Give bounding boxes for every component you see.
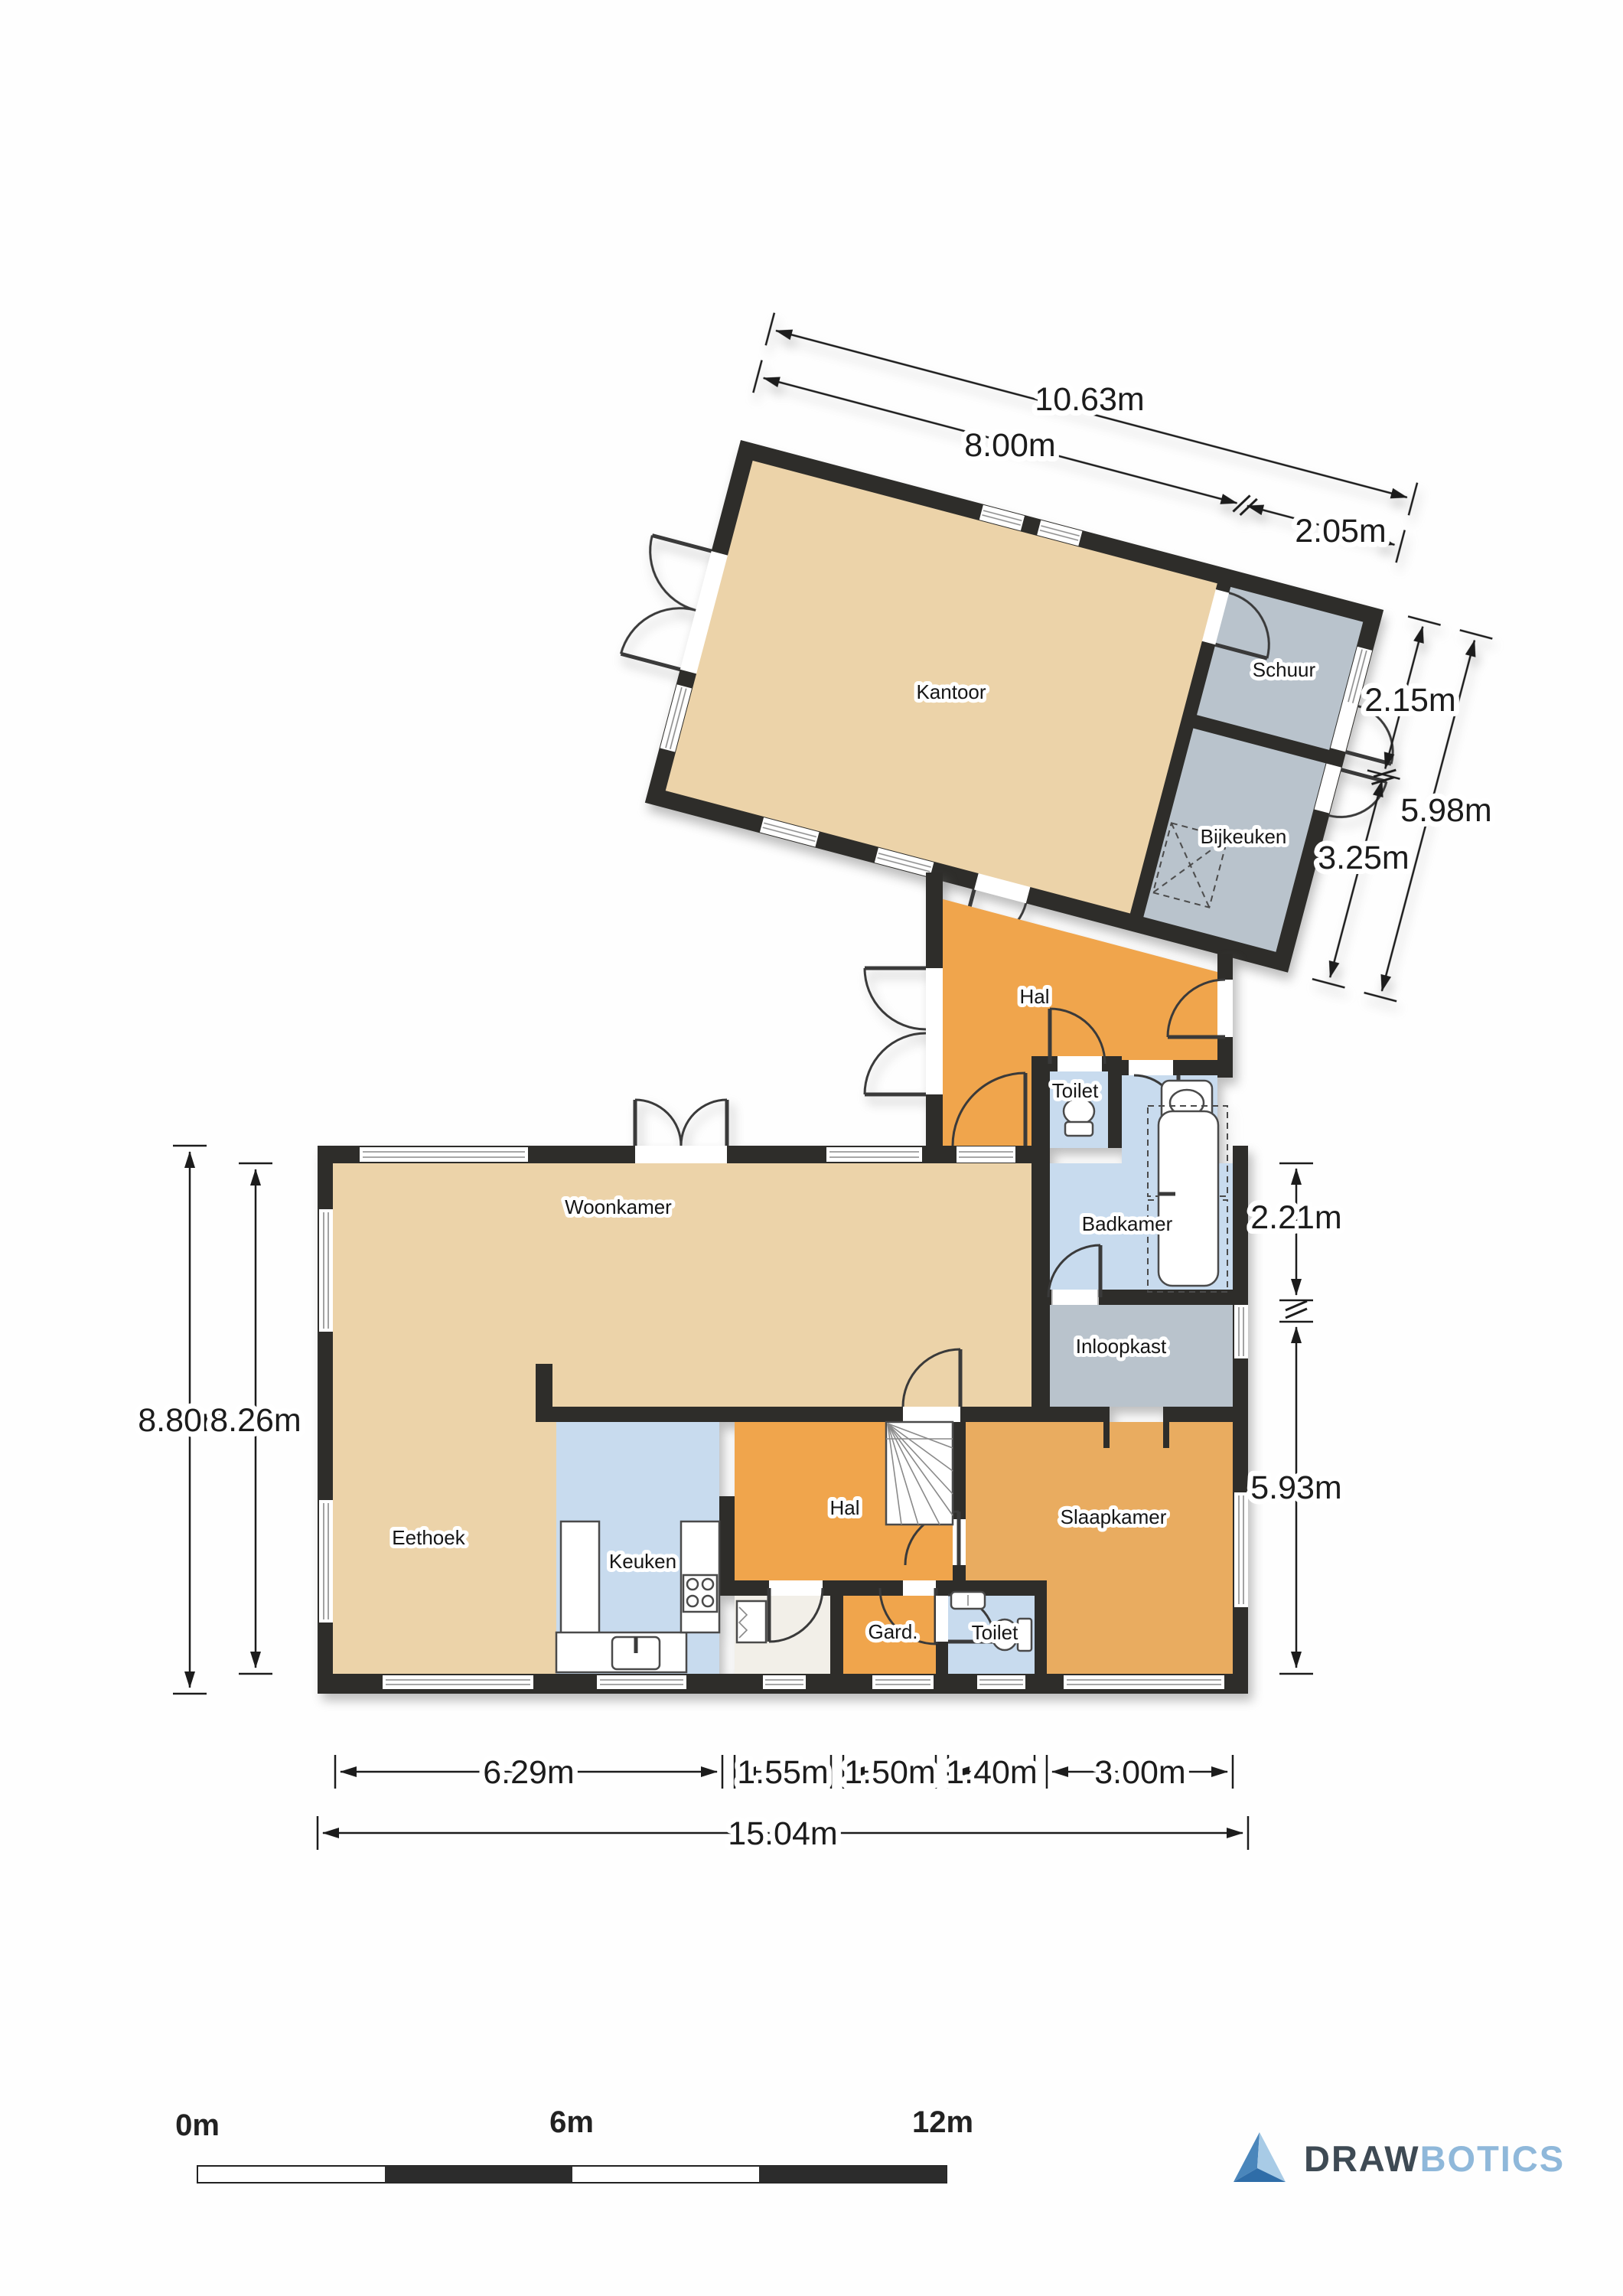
room-label-woonkamer: Woonkamer (565, 1195, 672, 1218)
dim-2-05m: 2.05m (1295, 513, 1387, 550)
stairs (886, 1422, 953, 1525)
dim-15-04m: 15.04m (728, 1815, 837, 1852)
room-label-badkamer: Badkamer (1082, 1212, 1173, 1235)
floorplan-canvas: 10.63m 8.00m 2.05m 2.15m 5.98m 3.25m 8.8… (0, 0, 1623, 2296)
dim-2-15m: 2.15m (1364, 682, 1456, 719)
dim-10-63m: 10.63m (1035, 381, 1144, 418)
floorplan-page: 10.63m 8.00m 2.05m 2.15m 5.98m 3.25m 8.8… (0, 0, 1623, 2296)
boiler (737, 1601, 766, 1642)
dim-1-50m: 1.50m (844, 1754, 936, 1791)
drawbotics-triangle-icon (1234, 2132, 1286, 2182)
dim-8-00m: 8.00m (964, 427, 1056, 464)
room-label-toilet-boven: Toilet (1052, 1079, 1099, 1102)
dim-6-29m: 6.29m (483, 1754, 575, 1791)
dim-8-26m: 8.26m (210, 1402, 301, 1439)
logo-text-draw: DRAWBOTICS (1304, 2138, 1565, 2179)
dim-1-55m: 1.55m (737, 1754, 829, 1791)
room-label-hal-beneden: Hal (829, 1496, 859, 1519)
room-label-inloopkast: Inloopkast (1076, 1335, 1167, 1358)
dim-5-98m: 5.98m (1400, 792, 1492, 829)
room-label-gard: Gard. (868, 1620, 917, 1643)
room-label-kantoor: Kantoor (916, 680, 986, 703)
scalebar-label-12m: 12m (912, 2105, 973, 2139)
scale-bar: 0m 6m 12m (175, 2105, 973, 2183)
toilet-boven-fixture (1064, 1098, 1094, 1136)
dim-5-93m: 5.93m (1250, 1469, 1342, 1506)
dim-3-00m: 3.00m (1094, 1754, 1186, 1791)
room-label-toilet-beneden: Toilet (972, 1621, 1018, 1644)
room-label-eethoek: Eethoek (392, 1526, 465, 1549)
scalebar-label-0m: 0m (175, 2108, 220, 2142)
scalebar-label-6m: 6m (549, 2105, 594, 2139)
drawbotics-logo: DRAWBOTICS (1234, 2132, 1565, 2182)
dim-2-21m: 2.21m (1250, 1199, 1342, 1236)
lower-building (318, 872, 1248, 1694)
room-label-slaapkamer: Slaapkamer (1061, 1505, 1167, 1528)
room-label-schuur: Schuur (1253, 658, 1316, 681)
room-label-keuken: Keuken (609, 1550, 676, 1573)
dim-3-25m: 3.25m (1318, 840, 1410, 876)
room-label-hal-boven: Hal (1019, 985, 1049, 1008)
dim-1-40m: 1.40m (946, 1754, 1038, 1791)
bathtub (1148, 1106, 1227, 1292)
room-label-bijkeuken: Bijkeuken (1201, 825, 1287, 848)
